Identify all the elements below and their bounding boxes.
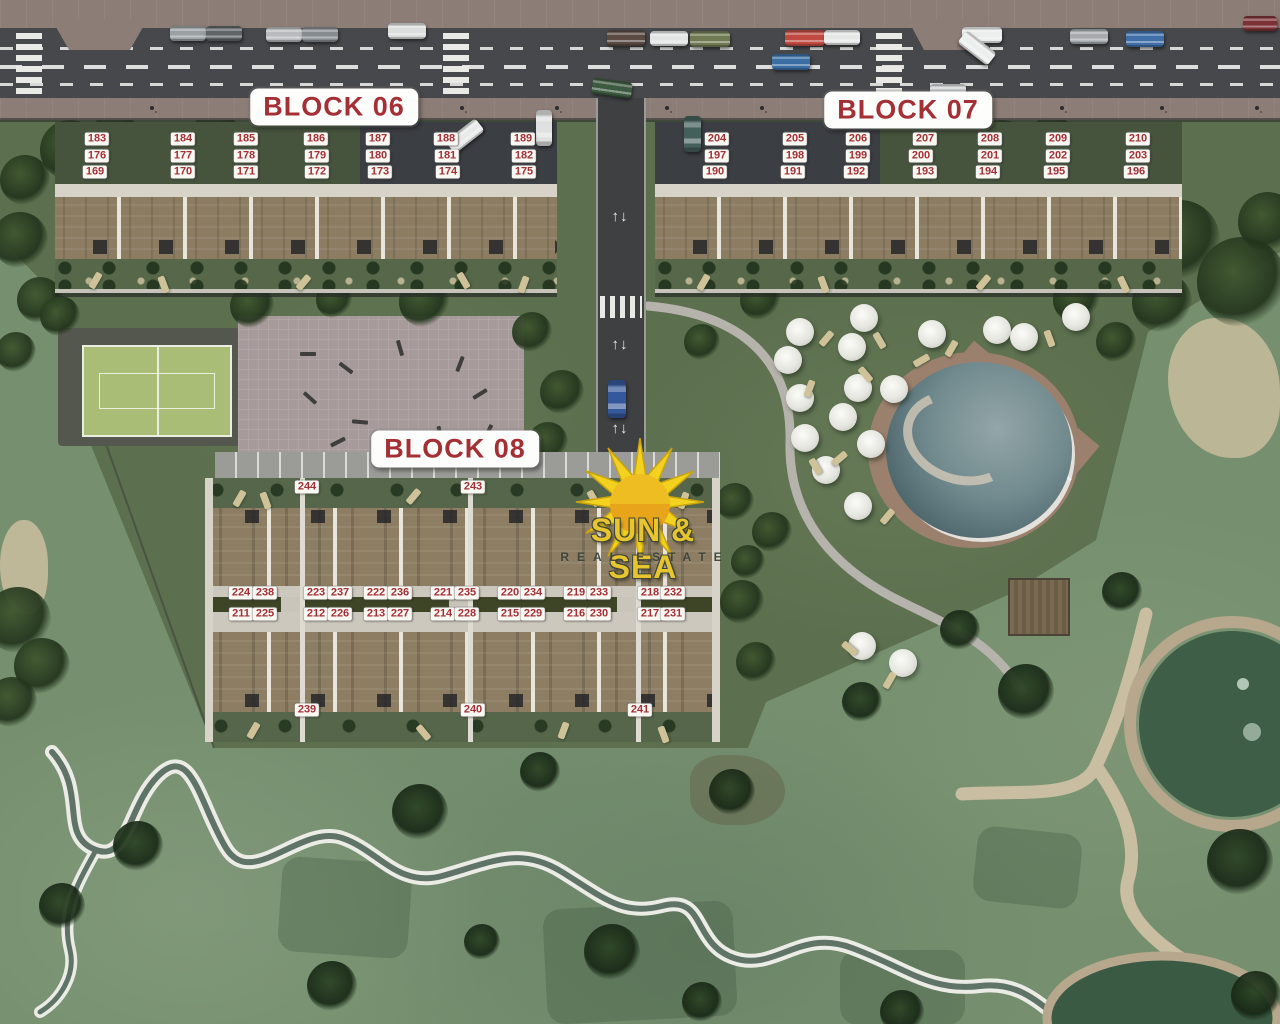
unit-marker-189: 189 xyxy=(511,133,535,146)
unit-marker-241: 241 xyxy=(628,704,652,717)
unit-marker-180: 180 xyxy=(366,150,390,163)
unit-marker-237: 237 xyxy=(328,587,352,600)
unit-marker-177: 177 xyxy=(171,150,195,163)
unit-marker-236: 236 xyxy=(388,587,412,600)
unit-marker-172: 172 xyxy=(305,166,329,179)
unit-marker-185: 185 xyxy=(234,133,258,146)
unit-marker-194: 194 xyxy=(976,166,1000,179)
unit-marker-217: 217 xyxy=(638,608,662,621)
unit-marker-191: 191 xyxy=(781,166,805,179)
unit-marker-200: 200 xyxy=(909,150,933,163)
unit-marker-211: 211 xyxy=(229,608,253,621)
unit-marker-203: 203 xyxy=(1126,150,1150,163)
unit-marker-201: 201 xyxy=(978,150,1002,163)
unit-marker-244: 244 xyxy=(295,481,319,494)
unit-marker-230: 230 xyxy=(587,608,611,621)
unit-marker-183: 183 xyxy=(85,133,109,146)
unit-marker-222: 222 xyxy=(364,587,388,600)
unit-marker-199: 199 xyxy=(846,150,870,163)
unit-marker-231: 231 xyxy=(661,608,685,621)
unit-marker-227: 227 xyxy=(388,608,412,621)
unit-marker-198: 198 xyxy=(783,150,807,163)
unit-marker-181: 181 xyxy=(435,150,459,163)
unit-marker-234: 234 xyxy=(521,587,545,600)
unit-marker-214: 214 xyxy=(431,608,455,621)
unit-marker-202: 202 xyxy=(1046,150,1070,163)
unit-marker-228: 228 xyxy=(455,608,479,621)
unit-marker-184: 184 xyxy=(171,133,195,146)
unit-marker-197: 197 xyxy=(705,150,729,163)
unit-marker-219: 219 xyxy=(564,587,588,600)
unit-marker-238: 238 xyxy=(253,587,277,600)
logo-subtitle: REAL ESTATE xyxy=(560,550,730,564)
unit-marker-182: 182 xyxy=(512,150,536,163)
unit-marker-213: 213 xyxy=(364,608,388,621)
unit-marker-208: 208 xyxy=(978,133,1002,146)
unit-marker-235: 235 xyxy=(455,587,479,600)
unit-marker-204: 204 xyxy=(705,133,729,146)
unit-marker-216: 216 xyxy=(564,608,588,621)
unit-marker-224: 224 xyxy=(229,587,253,600)
unit-marker-193: 193 xyxy=(913,166,937,179)
unit-marker-207: 207 xyxy=(913,133,937,146)
unit-marker-232: 232 xyxy=(661,587,685,600)
unit-marker-196: 196 xyxy=(1124,166,1148,179)
unit-marker-205: 205 xyxy=(783,133,807,146)
unit-marker-169: 169 xyxy=(83,166,107,179)
unit-marker-229: 229 xyxy=(521,608,545,621)
unit-marker-240: 240 xyxy=(461,704,485,717)
unit-marker-223: 223 xyxy=(304,587,328,600)
unit-marker-178: 178 xyxy=(234,150,258,163)
unit-marker-170: 170 xyxy=(171,166,195,179)
unit-marker-221: 221 xyxy=(431,587,455,600)
unit-marker-215: 215 xyxy=(498,608,522,621)
unit-marker-186: 186 xyxy=(304,133,328,146)
unit-marker-210: 210 xyxy=(1126,133,1150,146)
unit-marker-188: 188 xyxy=(434,133,458,146)
unit-marker-190: 190 xyxy=(703,166,727,179)
logo-title: SUN & SEA xyxy=(558,512,728,586)
unit-marker-233: 233 xyxy=(587,587,611,600)
unit-marker-243: 243 xyxy=(461,481,485,494)
unit-marker-209: 209 xyxy=(1046,133,1070,146)
unit-marker-195: 195 xyxy=(1044,166,1068,179)
unit-marker-218: 218 xyxy=(638,587,662,600)
unit-marker-225: 225 xyxy=(253,608,277,621)
unit-marker-192: 192 xyxy=(844,166,868,179)
unit-marker-220: 220 xyxy=(498,587,522,600)
unit-marker-226: 226 xyxy=(328,608,352,621)
unit-marker-175: 175 xyxy=(512,166,536,179)
unit-marker-179: 179 xyxy=(305,150,329,163)
unit-marker-206: 206 xyxy=(846,133,870,146)
unit-marker-171: 171 xyxy=(234,166,258,179)
unit-marker-174: 174 xyxy=(436,166,460,179)
unit-marker-176: 176 xyxy=(85,150,109,163)
unit-marker-239: 239 xyxy=(295,704,319,717)
unit-marker-212: 212 xyxy=(304,608,328,621)
unit-marker-173: 173 xyxy=(368,166,392,179)
unit-marker-187: 187 xyxy=(366,133,390,146)
site-plan: ↑↓ ↑↓ ↑↓ xyxy=(0,0,1280,1024)
